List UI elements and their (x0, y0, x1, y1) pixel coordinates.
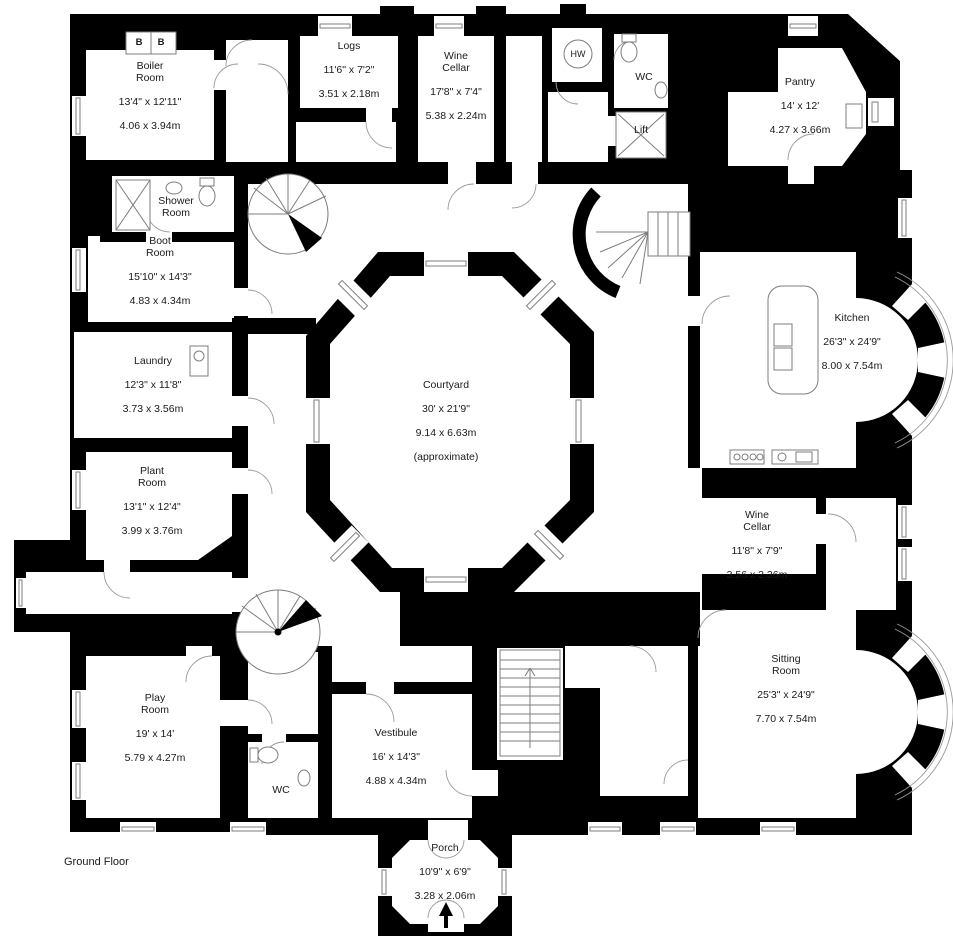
room-dims-ft: 17'8" x 7'4" (426, 86, 487, 98)
room-label-courtyard: Courtyard 30' x 21'9" 9.14 x 6.63m (appr… (414, 367, 479, 475)
room-label-wine-cellar-top: Wine Cellar 17'8" x 7'4" 5.38 x 2.24m (426, 38, 487, 134)
room-dims-m: 3.28 x 2.06m (415, 890, 476, 902)
room-name: Laundry (123, 355, 184, 367)
room-name: Shower Room (158, 195, 194, 219)
floor-title: Ground Floor (64, 856, 129, 868)
room-name: Logs (319, 40, 380, 52)
room-label-logs: Logs 11'6" x 7'2" 3.51 x 2.18m (319, 28, 380, 112)
room-label-lift: Lift (634, 112, 648, 148)
room-label-wc-bottom: WC (272, 772, 290, 808)
room-note: (approximate) (414, 451, 479, 463)
room-dims-ft: 11'8" x 7'9" (727, 545, 788, 557)
basin-icon (298, 770, 310, 786)
hob-icon (730, 450, 764, 464)
room-name: Porch (415, 842, 476, 854)
room-label-porch: Porch 10'9" x 6'9" 3.28 x 2.06m (415, 830, 476, 914)
room-label-plant-room: Plant Room 13'1" x 12'4" 3.99 x 3.76m (122, 453, 183, 549)
room-dims-m: 4.88 x 4.34m (366, 775, 427, 787)
room-label-boot-room: Boot Room 15'10" x 14'3" 4.83 x 4.34m (128, 223, 191, 319)
room-dims-ft: 12'3" x 11'8" (123, 379, 184, 391)
room-name: WC (635, 71, 653, 83)
room-label-hw: HW (571, 39, 586, 69)
room-label-boiler-room: Boiler Room 13'4" x 12'11" 4.06 x 3.94m (119, 48, 182, 144)
kitchen-sink-icon (772, 450, 818, 464)
room-dims-ft: 26'3" x 24'9" (822, 336, 883, 348)
room-dims-ft: 13'1" x 12'4" (122, 501, 183, 513)
room-dims-m: 9.14 x 6.63m (414, 427, 479, 439)
room-name: Boiler Room (119, 60, 182, 84)
kitchen-island (768, 286, 818, 394)
room-dims-ft: 30' x 21'9" (414, 403, 479, 415)
room-dims-m: 3.99 x 3.76m (122, 525, 183, 537)
room-label-laundry: Laundry 12'3" x 11'8" 3.73 x 3.56m (123, 343, 184, 427)
room-label-vestibule: Vestibule 16' x 14'3" 4.88 x 4.34m (366, 715, 427, 799)
room-dims-m: 5.38 x 2.24m (426, 110, 487, 122)
room-name: Play Room (125, 692, 186, 716)
room-dims-ft: 25'3" x 24'9" (756, 689, 817, 701)
room-name: Courtyard (414, 379, 479, 391)
room-dims-m: 5.79 x 4.27m (125, 752, 186, 764)
room-label-pantry: Pantry 14' x 12' 4.27 x 3.66m (770, 64, 831, 148)
room-label-wine-cellar-right: Wine Cellar 11'8" x 7'9" 3.56 x 2.36m (727, 497, 788, 593)
toilet-icon (250, 747, 278, 763)
room-dims-m: 4.27 x 3.66m (770, 124, 831, 136)
room-dims-m: 8.00 x 7.54m (822, 360, 883, 372)
room-name: HW (571, 49, 586, 59)
room-label-play-room: Play Room 19' x 14' 5.79 x 4.27m (125, 680, 186, 776)
room-dims-m: 4.06 x 3.94m (119, 120, 182, 132)
room-name: Plant Room (122, 465, 183, 489)
room-name: Boot Room (128, 235, 191, 259)
room-name: Vestibule (366, 727, 427, 739)
room-dims-ft: 13'4" x 12'11" (119, 96, 182, 108)
room-label-kitchen: Kitchen 26'3" x 24'9" 8.00 x 7.54m (822, 300, 883, 384)
pantry-unit-icon (846, 104, 862, 128)
room-dims-m: 7.70 x 7.54m (756, 713, 817, 725)
room-label-wc-top: WC (635, 59, 653, 95)
room-dims-ft: 16' x 14'3" (366, 751, 427, 763)
room-label-sitting-room: Sitting Room 25'3" x 24'9" 7.70 x 7.54m (756, 641, 817, 737)
room-name: Wine Cellar (727, 509, 788, 533)
room-dims-m: 4.83 x 4.34m (128, 295, 191, 307)
room-name: Sitting Room (756, 653, 817, 677)
room-dims-m: 3.51 x 2.18m (319, 88, 380, 100)
room-dims-m: 3.73 x 3.56m (123, 403, 184, 415)
room-name: WC (272, 784, 290, 796)
room-name: Kitchen (822, 312, 883, 324)
basin-icon (655, 82, 667, 98)
spiral-stair-top (248, 174, 328, 254)
laundry-appliance-icon (190, 346, 208, 376)
toilet-icon (199, 178, 215, 206)
room-dims-ft: 19' x 14' (125, 728, 186, 740)
room-dims-ft: 11'6" x 7'2" (319, 64, 380, 76)
room-name: Wine Cellar (426, 50, 487, 74)
room-dims-m: 3.56 x 2.36m (727, 569, 788, 581)
straight-stair (500, 650, 560, 756)
toilet-icon (621, 34, 637, 62)
room-dims-ft: 10'9" x 6'9" (415, 866, 476, 878)
room-dims-ft: 15'10" x 14'3" (128, 271, 191, 283)
room-dims-ft: 14' x 12' (770, 100, 831, 112)
floor-plan-page: { "floor": { "label": "Ground Floor" }, … (0, 0, 953, 944)
room-name: Lift (634, 124, 648, 136)
room-name: Pantry (770, 76, 831, 88)
